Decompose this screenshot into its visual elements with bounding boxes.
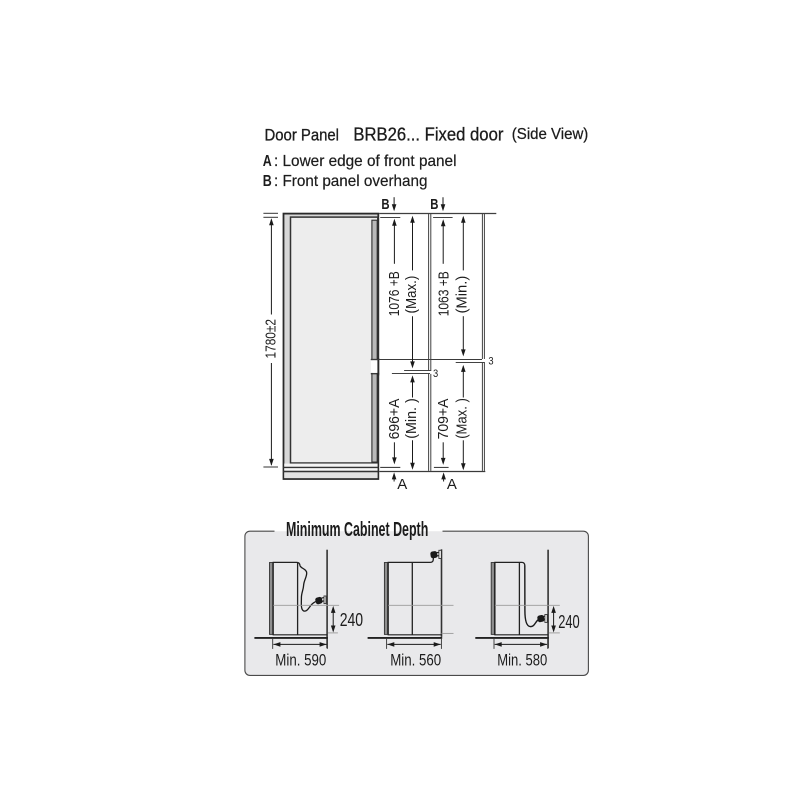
svg-text:1780±2: 1780±2: [262, 319, 279, 359]
svg-text:B: B: [381, 197, 389, 213]
svg-text:: Front panel overhang: : Front panel overhang: [274, 173, 428, 190]
svg-text:(Min.): (Min.): [454, 276, 471, 314]
svg-text:B: B: [263, 173, 272, 190]
svg-text:240: 240: [558, 611, 580, 632]
svg-text:Min. 560: Min. 560: [390, 650, 441, 669]
svg-text:B: B: [430, 197, 438, 213]
svg-text:Door Panel: Door Panel: [265, 125, 340, 144]
svg-text:696+A: 696+A: [386, 399, 403, 440]
svg-text:A: A: [447, 476, 457, 493]
svg-text:1063 +B: 1063 +B: [435, 271, 452, 316]
svg-text:A: A: [397, 476, 407, 493]
svg-text:Minimum Cabinet Depth: Minimum Cabinet Depth: [286, 519, 428, 541]
svg-text:A: A: [263, 153, 272, 170]
svg-text:709+A: 709+A: [435, 399, 452, 440]
svg-text:Min. 580: Min. 580: [497, 650, 547, 669]
svg-text:BRB26... Fixed door: BRB26... Fixed door: [353, 124, 503, 144]
svg-text:(Side View): (Side View): [512, 126, 589, 143]
svg-text:240: 240: [340, 609, 363, 630]
svg-text:3: 3: [433, 368, 438, 380]
svg-text:Min. 590: Min. 590: [275, 650, 326, 669]
svg-text:(Min. ): (Min. ): [403, 398, 420, 439]
svg-text:: Lower edge of front panel: : Lower edge of front panel: [274, 153, 457, 170]
svg-text:(Max. ): (Max. ): [454, 398, 471, 439]
svg-text:1076 +B: 1076 +B: [386, 271, 403, 316]
svg-text:3: 3: [488, 355, 493, 367]
svg-text:(Max.): (Max.): [403, 276, 420, 314]
